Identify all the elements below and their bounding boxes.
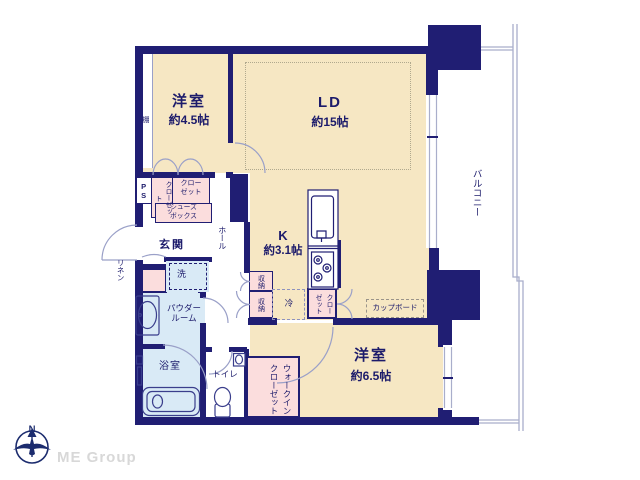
- ld-door-arc: [235, 143, 265, 173]
- window-glass-lines: [430, 95, 452, 408]
- cupboard-label: カップボード: [368, 303, 422, 312]
- powder-door-arc: [203, 298, 228, 323]
- compass-n-label: N: [26, 424, 38, 436]
- storage-b-doors: [237, 291, 251, 318]
- bath-label: 浴室: [150, 361, 190, 373]
- toilet-label: トイレ: [206, 369, 244, 379]
- room-west2-label: 洋室: [340, 347, 402, 365]
- kitchen-label: K: [265, 228, 301, 244]
- balcony-railing: [479, 24, 523, 431]
- bath-rail: [138, 367, 142, 385]
- entrance-step-line: [142, 255, 166, 258]
- closet-entry-label: クローゼット: [178, 180, 204, 197]
- closet-kitchen-doors: [337, 289, 352, 319]
- kitchen-sink: [312, 196, 334, 238]
- room-west1-label: 洋室: [158, 93, 220, 111]
- plan-linework: [0, 0, 640, 480]
- hall-label: ホール: [217, 222, 227, 254]
- storage-b-label: 収納: [256, 296, 265, 313]
- pipe-space-label: PS: [139, 181, 148, 201]
- linen-label: リネン: [116, 254, 125, 286]
- balcony-label: バルコニー: [470, 165, 482, 220]
- room-west2-size: 約6.5帖: [330, 369, 412, 384]
- powder-room-label: パウダールーム: [164, 303, 204, 324]
- walk-in-closet-label: ウォークインクローゼット: [253, 361, 293, 417]
- closet-kitchen-label: クローゼット: [310, 291, 334, 317]
- entrance-label: 玄関: [150, 239, 194, 252]
- fridge-label: 冷: [281, 298, 297, 308]
- west1-closet-bifold: [153, 159, 203, 175]
- compass-bird: [13, 439, 51, 455]
- bath-shelf: [137, 356, 143, 364]
- ld-size: 約15帖: [290, 115, 370, 130]
- floor-plan: 棚 洋室 約4.5帖 LD 約15帖 K 約3.1帖 洋室 約6.5帖 バルコニ…: [0, 0, 640, 480]
- storage-a-label: 収納: [256, 273, 265, 290]
- storage-a-doors: [241, 272, 251, 291]
- kitchen-size: 約3.1帖: [252, 244, 314, 258]
- brand-logo-text: ME Group: [57, 449, 137, 466]
- room-west1-size: 約4.5帖: [148, 113, 230, 128]
- window-ticks: [427, 137, 453, 378]
- toilet-fixture: [215, 354, 246, 418]
- kitchen-counter: [308, 190, 338, 289]
- ld-label: LD: [300, 94, 360, 112]
- washer-label: 洗: [169, 269, 194, 280]
- shoe-box-label: シューズボックス: [168, 204, 199, 222]
- wash-basin: [136, 296, 159, 335]
